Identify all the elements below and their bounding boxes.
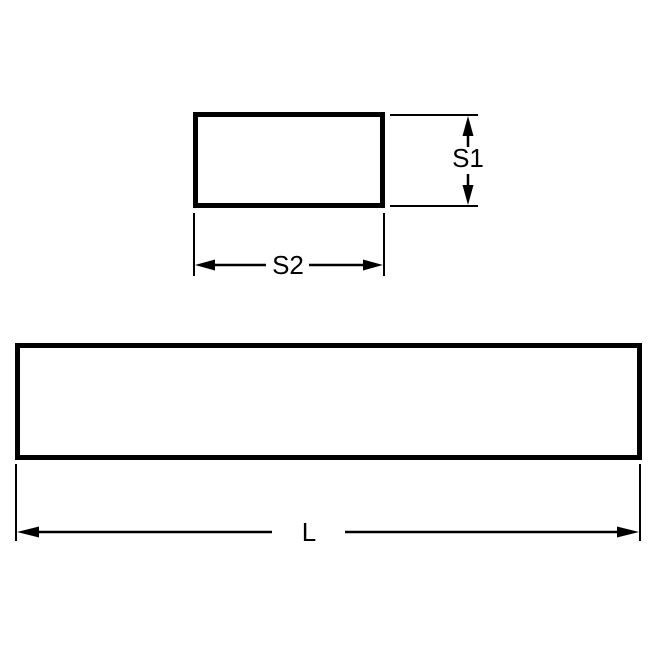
cross-section-rectangle [196, 115, 383, 206]
side-view: L [16, 346, 640, 548]
arrow-up-icon [463, 116, 474, 136]
keystock-diagram-canvas: S1 S2 L [0, 0, 670, 670]
arrow-left-icon [195, 260, 215, 271]
dimension-drawing: S1 S2 L [0, 0, 670, 670]
s1-dimension-label: S1 [452, 143, 484, 173]
arrow-left-icon [17, 527, 39, 538]
s1-dimension: S1 [390, 115, 484, 206]
length-dimension: L [16, 464, 640, 547]
side-view-rectangle [18, 346, 640, 458]
length-dimension-label: L [302, 517, 316, 547]
s2-dimension-label: S2 [272, 250, 304, 280]
arrow-right-icon [617, 527, 639, 538]
arrow-down-icon [463, 185, 474, 205]
cross-section-view: S1 S2 [194, 115, 484, 281]
s2-dimension: S2 [194, 213, 384, 280]
arrow-right-icon [363, 260, 383, 271]
